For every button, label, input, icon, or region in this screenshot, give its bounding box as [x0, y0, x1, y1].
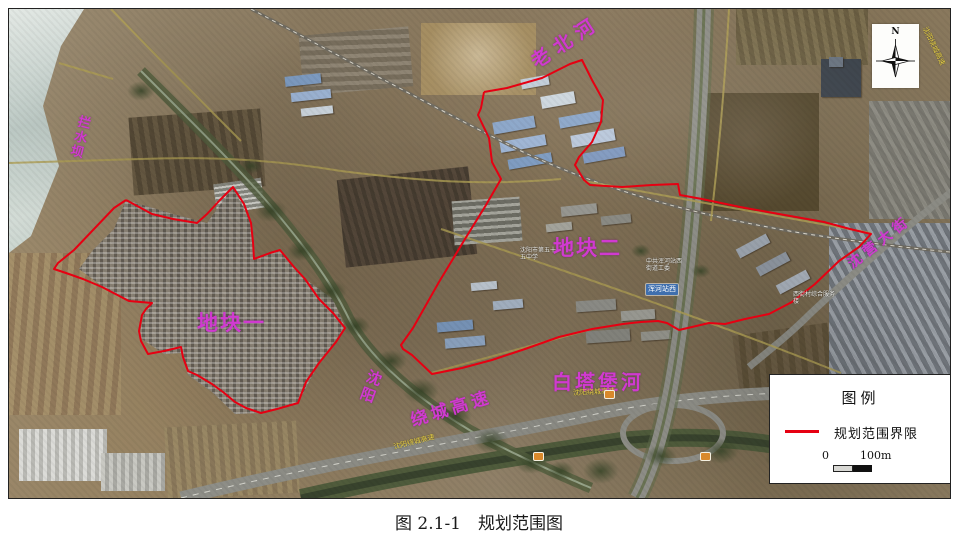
school-poi-label: 沈阳市第五十五中学 — [520, 248, 556, 262]
satellite-map: 地块一 地块二 白塔堡河 老北河 拦水坝 沈阳 绕城高速 沈营大街 沈阳绕城高速… — [8, 8, 951, 499]
route-shield-icon — [605, 391, 614, 398]
scale-bar-dark-cell — [853, 465, 872, 472]
boundary-legend-label: 规划范围界限 — [834, 423, 918, 442]
plot2-label: 地块二 — [553, 232, 622, 262]
legend-title: 图例 — [770, 387, 951, 408]
compass-rose-icon — [872, 37, 919, 87]
scale-bar-light-cell — [833, 465, 853, 472]
north-label: N — [872, 27, 919, 37]
scale-bar — [833, 465, 872, 472]
figure-page: 地块一 地块二 白塔堡河 老北河 拦水坝 沈阳 绕城高速 沈营大街 沈阳绕城高速… — [0, 0, 958, 541]
committee-poi-label: 中共浑河站西街道工委 — [646, 259, 686, 273]
scale-max-label: 100m — [860, 449, 891, 462]
boundary-line-symbol — [785, 430, 819, 433]
plot1-boundary — [54, 187, 345, 413]
legend-box: 图例 规划范围界限 0 100m — [769, 374, 951, 484]
scale-zero-label: 0 — [822, 449, 829, 462]
service-center-poi-label: 西街村综合服务楼 — [793, 292, 837, 306]
route-shield-icon — [534, 453, 543, 460]
route-shield-icon — [701, 453, 710, 460]
figure-caption: 图 2.1-1 规划范围图 — [0, 509, 958, 534]
plot1-label: 地块一 — [197, 307, 266, 337]
hunhe-station-road-sign: 浑河站西 — [646, 284, 678, 295]
compass-box: N — [872, 24, 919, 88]
map-imagery: 地块一 地块二 白塔堡河 老北河 拦水坝 沈阳 绕城高速 沈营大街 沈阳绕城高速… — [8, 8, 951, 499]
plot2-boundary — [401, 60, 871, 374]
